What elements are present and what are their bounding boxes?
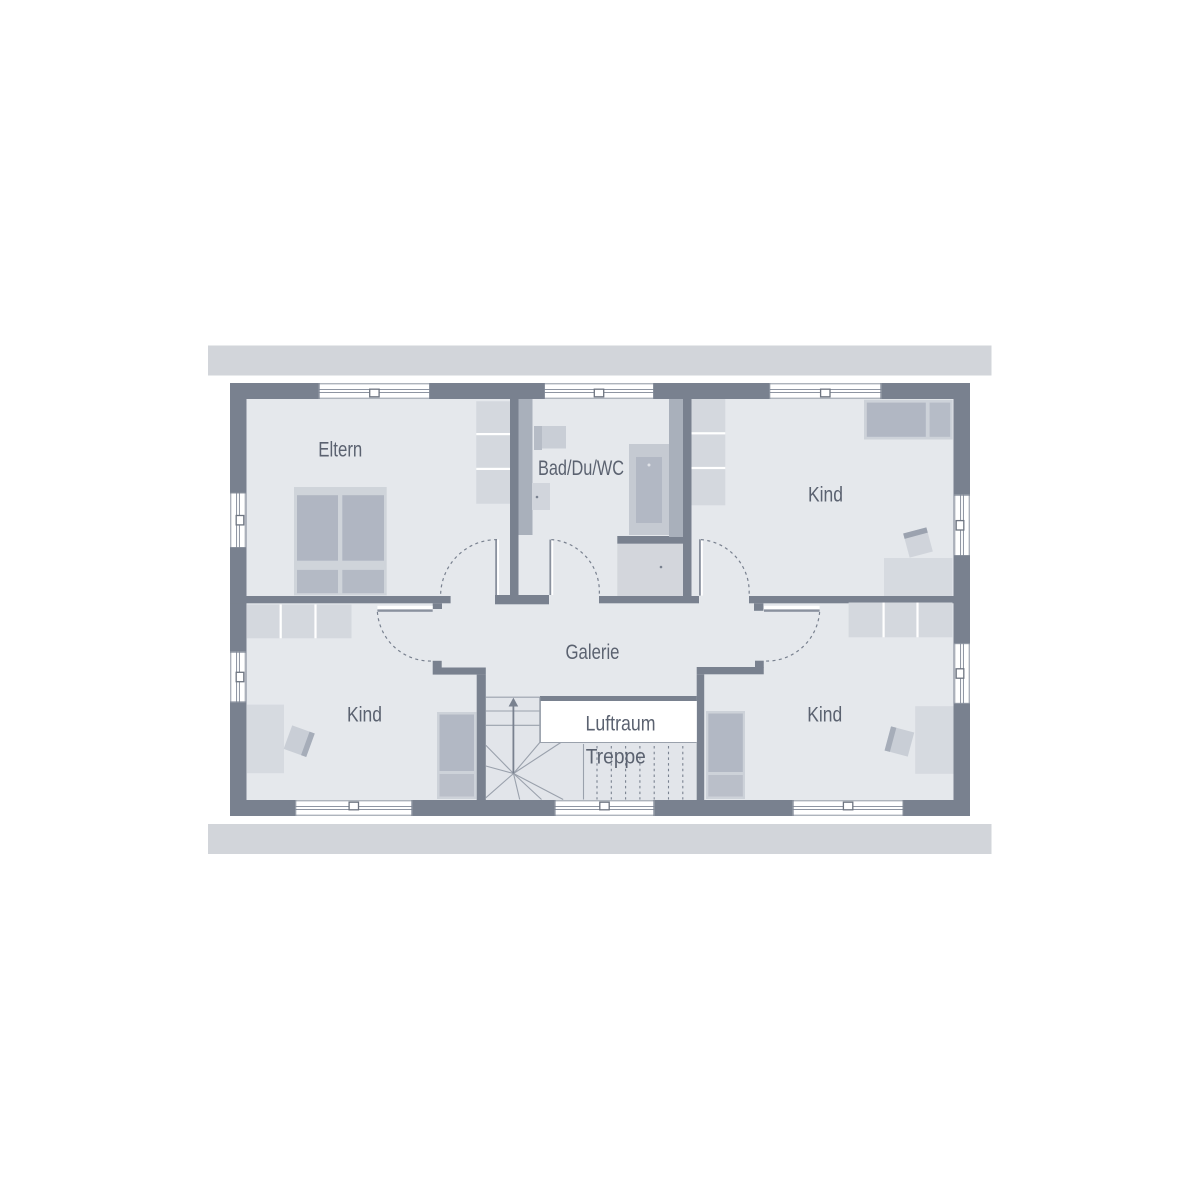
svg-text:Luftraum: Luftraum	[586, 712, 656, 736]
svg-text:Treppe: Treppe	[586, 745, 646, 769]
svg-text:Kind: Kind	[347, 703, 382, 727]
svg-text:Kind: Kind	[807, 703, 842, 727]
svg-text:Bad/Du/WC: Bad/Du/WC	[538, 456, 624, 480]
svg-text:Kind: Kind	[808, 482, 843, 506]
svg-text:Eltern: Eltern	[318, 437, 362, 461]
svg-text:Galerie: Galerie	[566, 640, 620, 664]
